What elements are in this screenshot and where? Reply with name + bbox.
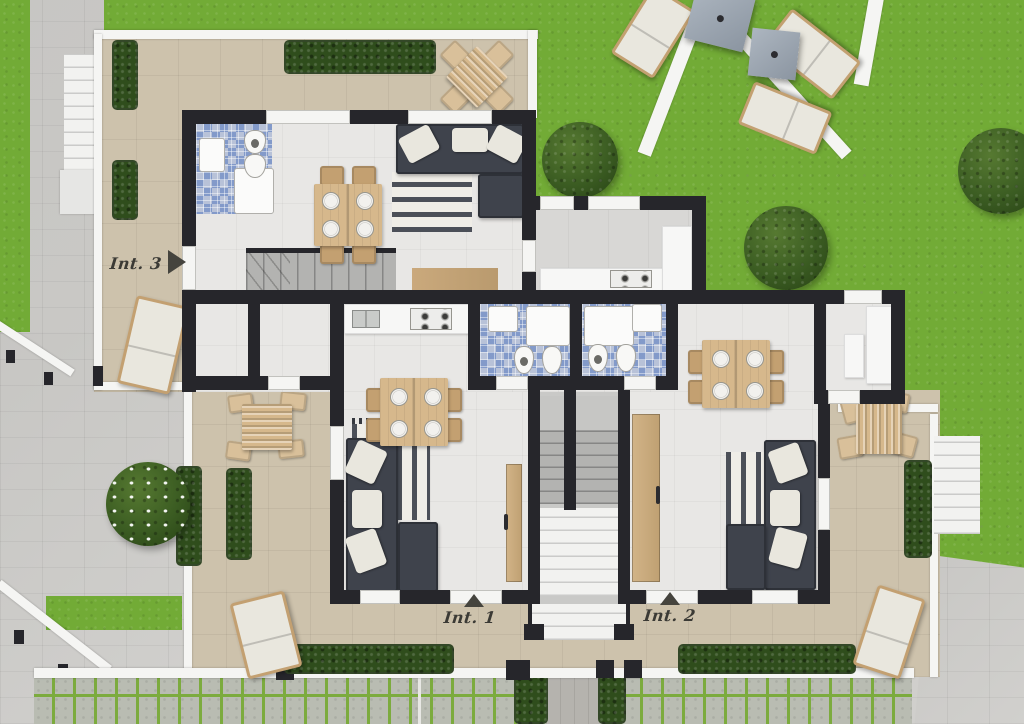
window-int1-south <box>360 590 400 604</box>
stairwell-flight-right <box>576 430 618 504</box>
sofa-int2-chaise <box>726 524 766 590</box>
railing-top <box>94 30 538 39</box>
wood-landing-int3 <box>412 268 498 292</box>
entrance-arrow-int-1-icon <box>464 594 484 607</box>
stairwell-flight-lower <box>540 508 618 596</box>
entrance-walkway <box>546 677 604 724</box>
stairwell-pillar-right <box>614 624 634 640</box>
dinner-plate <box>322 220 340 238</box>
tree-flowering-west <box>106 462 190 546</box>
window-upper-1 <box>266 110 350 124</box>
bath-sink-int2 <box>632 304 662 332</box>
door-handle <box>504 514 508 530</box>
sofa-int1-chaise <box>398 522 438 592</box>
grass-patch-bottom-left <box>46 596 182 630</box>
railing-pillar <box>506 660 530 680</box>
unit-label-int-2: Int. 2 <box>643 606 697 625</box>
fence-post <box>44 372 53 385</box>
parasol-pole <box>716 14 724 22</box>
stairwell-landing <box>540 396 618 430</box>
kitchen-appliance-int2 <box>844 334 864 378</box>
dinner-plate <box>356 220 374 238</box>
wall-int2-kitchen2 <box>814 304 826 400</box>
sofa-cushion <box>770 490 800 526</box>
sofa-cushion <box>452 128 488 152</box>
parasol-pole <box>771 51 779 59</box>
rug-int3 <box>392 172 472 232</box>
cooktop-int1 <box>410 308 452 330</box>
dinner-plate <box>746 382 764 400</box>
wall-bath2-int2 <box>666 304 678 384</box>
grass-left-strip <box>0 0 30 348</box>
tree-by-building <box>542 122 618 198</box>
railing-top-right <box>528 30 537 118</box>
dinner-plate <box>424 388 442 406</box>
wall-kitchen-bath1 <box>468 304 480 384</box>
dinner-plate <box>712 350 730 368</box>
dinner-plate <box>712 382 730 400</box>
wall-middle-main <box>182 290 905 304</box>
grass-paver-driveway <box>34 677 912 724</box>
dinner-plate <box>322 192 340 210</box>
shower-int2 <box>584 306 634 346</box>
bath-sink-upper <box>199 138 225 172</box>
stairwell-pillar-left <box>524 624 544 640</box>
entrance-arrow-int-3-icon <box>168 250 186 274</box>
parasol-2 <box>748 28 801 81</box>
dinner-plate <box>390 388 408 406</box>
dinner-plate <box>390 420 408 438</box>
floor-plan-scene: Int. 3 Int. 1 Int. 2 <box>0 0 1024 724</box>
fence-post <box>93 366 103 386</box>
wall-stairwell-mid <box>564 390 576 510</box>
dinner-plate <box>424 420 442 438</box>
dining-chair <box>320 166 344 186</box>
tree-lawn-center <box>744 206 828 290</box>
hedge-left-terrace-a <box>112 40 138 110</box>
walkway-plant-right <box>598 674 626 724</box>
door-kitchen2 <box>828 390 860 404</box>
bath-sink-int1 <box>488 306 518 332</box>
kitchen-counter-wing-right <box>662 226 692 292</box>
hedge-east-terrace <box>904 460 932 558</box>
window-wing-2 <box>588 196 640 210</box>
outdoor-stairs-east <box>934 436 980 534</box>
walkway-plant-left <box>514 674 548 724</box>
hedge-top-terrace <box>284 40 436 74</box>
stairwell-entry-steps <box>532 604 626 640</box>
hedge-left-terrace-b <box>112 160 138 220</box>
planter-west-terrace <box>226 468 252 560</box>
hedge-bottom-right <box>678 644 856 674</box>
fence-post <box>6 350 15 363</box>
dining-chair <box>352 166 376 186</box>
door-storage <box>268 376 300 390</box>
wall-bath-spine <box>570 304 582 384</box>
cooktop-wing <box>610 270 652 288</box>
hedge-bottom-left <box>284 644 454 674</box>
dinner-plate <box>746 350 764 368</box>
unit-label-int-1: Int. 1 <box>443 608 497 627</box>
wall-storage-bottom <box>182 376 344 390</box>
outdoor-table-east-terrace <box>856 404 902 454</box>
shower-int1 <box>526 306 570 346</box>
driveway-divider-line <box>418 677 421 724</box>
wall-wing-right <box>692 196 706 304</box>
door-bath1 <box>496 376 528 390</box>
fence-post <box>14 630 24 644</box>
railing-left <box>94 34 102 390</box>
window-int2-south <box>752 590 798 604</box>
window-int2-east <box>818 478 830 530</box>
dinner-plate <box>356 192 374 210</box>
door-wing <box>522 240 536 272</box>
railing-pillar <box>624 660 642 678</box>
wardrobe-door-int1 <box>506 464 522 582</box>
stairwell-flight-left <box>540 430 564 504</box>
dining-chair <box>352 244 376 264</box>
sofa-int3-chaise <box>478 174 524 218</box>
wall-right-exterior <box>891 290 905 404</box>
dining-chair <box>320 244 344 264</box>
outdoor-table-west-terrace <box>242 404 292 450</box>
railing-pillar <box>596 660 614 678</box>
window-upper-2 <box>408 110 492 124</box>
window-kitchen2-north <box>844 290 882 304</box>
unit-label-int-3: Int. 3 <box>109 254 163 273</box>
kitchen-sink-int1 <box>352 310 380 328</box>
kitchen-counter-int2 <box>866 306 892 384</box>
stairs-int3-winder <box>246 253 290 292</box>
wall-storage-divider <box>248 304 260 384</box>
window-int1-west <box>330 426 344 480</box>
door-handle <box>656 486 660 504</box>
entrance-arrow-int-2-icon <box>660 592 680 605</box>
sofa-cushion <box>352 490 382 528</box>
window-wing-1 <box>540 196 574 210</box>
door-bath2 <box>624 376 656 390</box>
